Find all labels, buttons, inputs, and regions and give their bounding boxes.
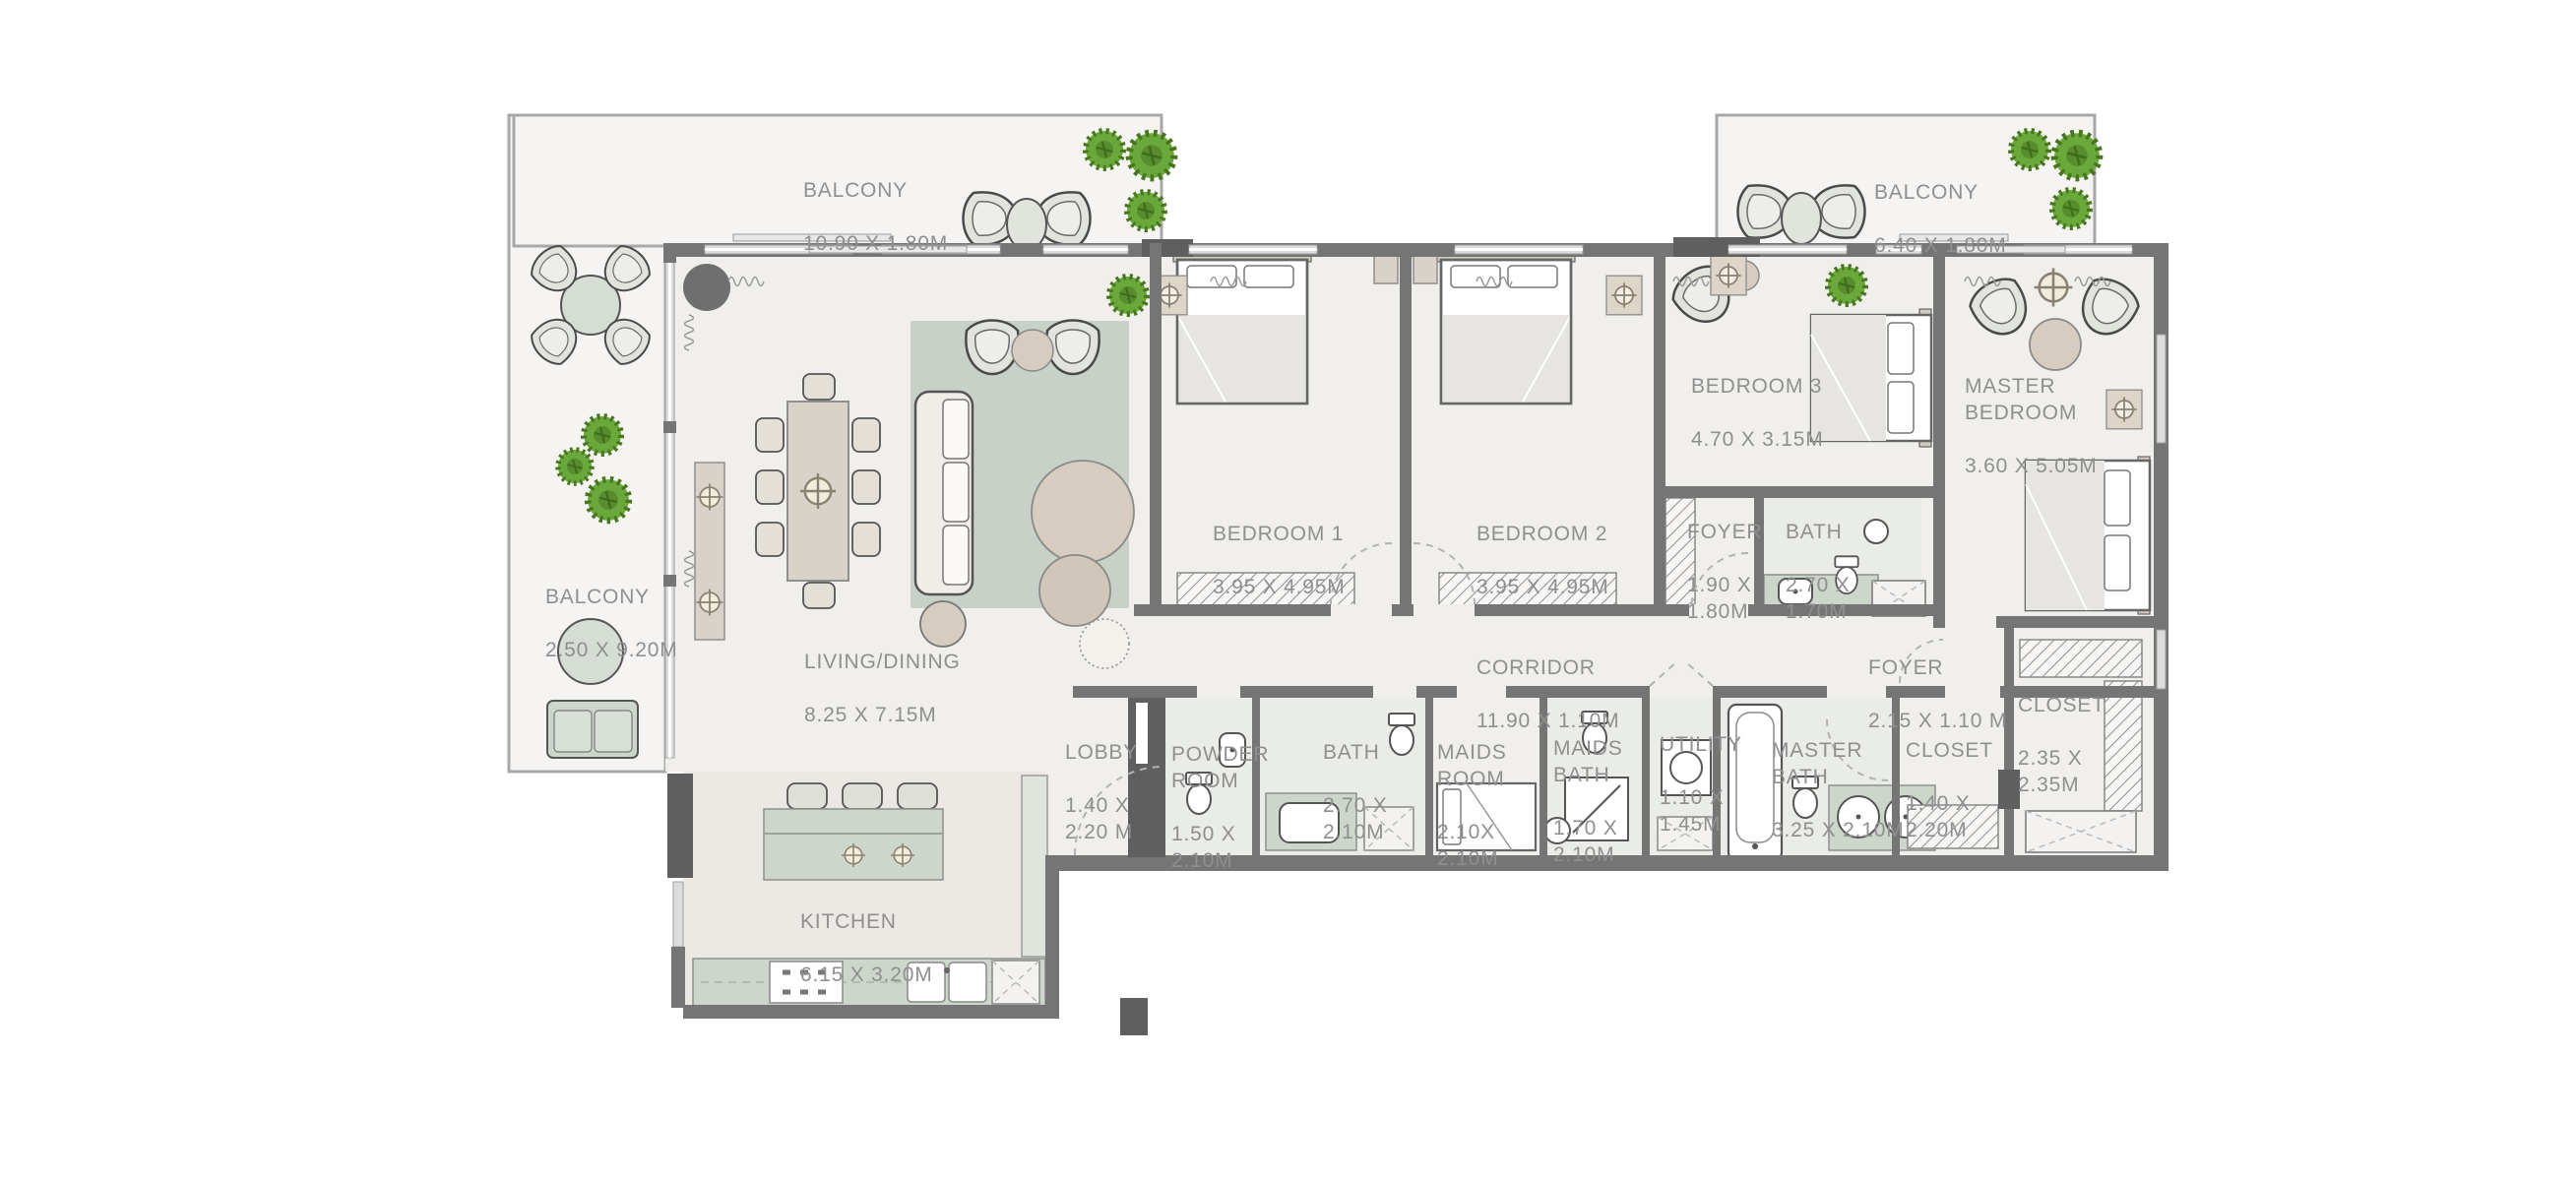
toilet-icon [1389, 714, 1414, 755]
plant-icon [1109, 277, 1147, 314]
balcony-table-icon [1782, 193, 1821, 244]
room-dims: 10.90 X 1.80M [803, 230, 948, 257]
room-dims: 1.70 X 2.10M [1553, 815, 1623, 868]
plant-icon [588, 479, 629, 521]
pouf-icon [1080, 619, 1129, 668]
room-name: CLOSET [2018, 692, 2105, 718]
room-dims: 8.25 X 7.15M [804, 702, 961, 728]
room-dims: 4.70 X 3.15M [1691, 426, 1824, 453]
room-dims: 2.70 X 1.70M [1786, 572, 1851, 625]
plant-icon [1127, 192, 1164, 229]
stool-icon [787, 783, 827, 809]
ac-unit-icon [2106, 390, 2142, 429]
plant-icon [2011, 131, 2048, 168]
room-label-master-bedroom: MASTER BEDROOM 3.60 X 5.05M [1965, 346, 2098, 506]
armchair-icon [966, 321, 1018, 375]
bed-icon [1811, 309, 1931, 447]
coffee-table-icon [1032, 461, 1134, 563]
plant-icon [584, 416, 621, 454]
room-label-closet2: CLOSET 1.40 X 2.20M [1906, 711, 1993, 870]
side-table-icon [1012, 330, 1053, 371]
room-name: BALCONY [803, 177, 948, 204]
stool-icon [898, 783, 937, 809]
plant-icon [1129, 133, 1174, 178]
room-name: POWDER ROOM [1171, 741, 1269, 794]
room-dims: 6.15 X 3.20M [800, 962, 933, 988]
nightstand-icon [1414, 254, 1437, 283]
room-label-master-bath: MASTER BATH 3.25 X 2.10M [1772, 711, 1905, 870]
nightstand-icon [1374, 254, 1398, 283]
balcony-table-icon [1007, 199, 1046, 250]
stool-icon [843, 783, 882, 809]
room-dims: 3.95 X 4.95M [1476, 574, 1609, 600]
room-name: BEDROOM 2 [1476, 521, 1609, 547]
room-label-utility: UTILITY 1.10 X 1.45M [1660, 705, 1742, 864]
room-dims: 1.40 X 2.20 M [1065, 792, 1138, 845]
room-label-bedroom1: BEDROOM 1 3.95 X 4.95M [1213, 494, 1346, 627]
plant-icon [2052, 190, 2090, 227]
room-name: BALCONY [545, 584, 678, 610]
room-dims: 3.25 X 2.10M [1772, 817, 1905, 843]
room-name: FOYER [1868, 654, 2007, 681]
room-name: BATH [1323, 739, 1388, 766]
room-name: KITCHEN [800, 908, 933, 935]
floor-plan-canvas: BALCONY 10.90 X 1.80M BALCONY 6.40 X 1.8… [0, 0, 2576, 1181]
room-label-bath2: BATH 2.70 X 2.10M [1323, 713, 1388, 872]
coffee-table-icon [1039, 555, 1110, 626]
duct-shaft [992, 961, 1039, 1004]
room-name: FOYER [1687, 519, 1762, 545]
room-label-foyer1: FOYER 1.90 X 1.80M [1687, 492, 1762, 652]
room-label-powder-room: POWDER ROOM 1.50 X 2.10M [1171, 715, 1269, 901]
wardrobe-icon [2105, 681, 2142, 811]
room-label-balcony-top-right: BALCONY 6.40 X 1.80M [1874, 153, 2007, 285]
armchair-icon [1046, 321, 1099, 375]
room-dims: 3.95 X 4.95M [1213, 574, 1346, 600]
room-name: BEDROOM 1 [1213, 521, 1346, 547]
room-name: CLOSET [1906, 737, 1993, 764]
room-label-living-dining: LIVING/DINING 8.25 X 7.15M [804, 622, 961, 755]
room-label-bedroom3: BEDROOM 3 4.70 X 3.15M [1691, 346, 1824, 479]
room-label-balcony-top: BALCONY 10.90 X 1.80M [803, 151, 948, 283]
room-dims: 2.50 X 9.20M [545, 637, 678, 663]
room-name: MAIDS BATH [1553, 735, 1623, 788]
room-dims: 1.40 X 2.20M [1906, 790, 1993, 843]
room-name: UTILITY [1660, 731, 1742, 758]
room-dims: 2.10X 2.10M [1437, 819, 1507, 872]
plant-icon [2054, 133, 2100, 178]
ac-unit-icon [1711, 256, 1746, 295]
room-name: LIVING/DINING [804, 649, 961, 675]
room-dims: 2.70 X 2.10M [1323, 792, 1388, 845]
room-name: BEDROOM 3 [1691, 373, 1824, 400]
room-name: MAIDS ROOM [1437, 739, 1507, 792]
room-label-walkin-closet: CLOSET 2.35 X 2.35M [2018, 665, 2105, 825]
plant-icon [1086, 131, 1123, 168]
room-name: BATH [1786, 519, 1851, 545]
kitchen-cabinet-icon [1022, 776, 1047, 957]
room-label-maids-bath: MAIDS BATH 1.70 X 2.10M [1553, 709, 1623, 895]
room-label-bedroom2: BEDROOM 2 3.95 X 4.95M [1476, 494, 1609, 627]
room-name: MASTER BATH [1772, 737, 1905, 790]
room-label-lobby: LOBBY 1.40 X 2.20 M [1065, 713, 1138, 872]
room-label-kitchen: KITCHEN 6.15 X 3.20M [800, 882, 933, 1015]
room-name: MASTER BEDROOM [1965, 373, 2098, 426]
room-dims: 1.90 X 1.80M [1687, 572, 1762, 625]
shower-icon [1864, 520, 1888, 543]
room-dims: 2.35 X 2.35M [2018, 745, 2105, 798]
room-name: CORRIDOR [1476, 654, 1619, 681]
plant-icon [558, 450, 592, 483]
plant-icon [1828, 267, 1865, 304]
room-label-maids-room: MAIDS ROOM 2.10X 2.10M [1437, 713, 1507, 899]
room-dims: 1.10 X 1.45M [1660, 784, 1742, 838]
planter-icon [683, 264, 730, 311]
room-name: BALCONY [1874, 179, 2007, 206]
room-label-bath1: BATH 2.70 X 1.70M [1786, 492, 1851, 652]
room-dims: 1.50 X 2.10M [1171, 821, 1269, 874]
room-dims: 3.60 X 5.05M [1965, 453, 2098, 479]
ac-unit-icon [1606, 276, 1642, 315]
bed-icon [1177, 260, 1307, 404]
room-label-balcony-left: BALCONY 2.50 X 9.20M [545, 557, 678, 690]
room-name: LOBBY [1065, 739, 1138, 766]
room-dims: 6.40 X 1.80M [1874, 232, 2007, 259]
